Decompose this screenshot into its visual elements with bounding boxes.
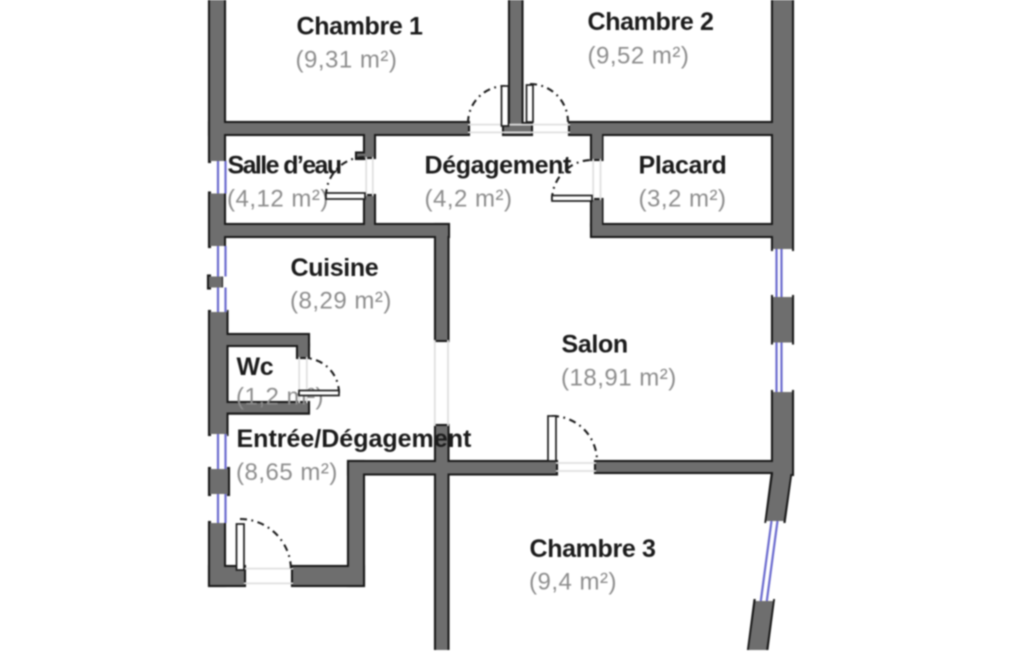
svg-text:(9,52 m²): (9,52 m²): [588, 43, 690, 70]
svg-text:Chambre 2: Chambre 2: [588, 8, 714, 36]
svg-text:(8,65 m²): (8,65 m²): [236, 459, 338, 486]
svg-text:Salle d’eau: Salle d’eau: [228, 152, 341, 180]
svg-text:(9,4 m²): (9,4 m²): [529, 569, 617, 596]
svg-text:(4,12 m²): (4,12 m²): [227, 186, 329, 213]
svg-text:(8,29 m²): (8,29 m²): [290, 288, 392, 315]
svg-text:Cuisine: Cuisine: [291, 254, 379, 282]
svg-text:(3,2 m²): (3,2 m²): [639, 186, 727, 213]
svg-text:(1,2 m²): (1,2 m²): [236, 384, 324, 411]
svg-text:Entrée/Dégagement: Entrée/Dégagement: [237, 425, 472, 453]
svg-text:Wc: Wc: [237, 353, 274, 381]
svg-text:Chambre 3: Chambre 3: [530, 535, 656, 563]
svg-text:(18,91 m²): (18,91 m²): [561, 365, 677, 392]
svg-text:Dégagement: Dégagement: [425, 152, 573, 180]
svg-text:(4,2 m²): (4,2 m²): [425, 186, 513, 213]
svg-text:(9,31 m²): (9,31 m²): [296, 47, 398, 74]
svg-text:Chambre 1: Chambre 1: [297, 13, 424, 41]
svg-text:Placard: Placard: [639, 152, 727, 180]
svg-text:Salon: Salon: [562, 331, 628, 359]
